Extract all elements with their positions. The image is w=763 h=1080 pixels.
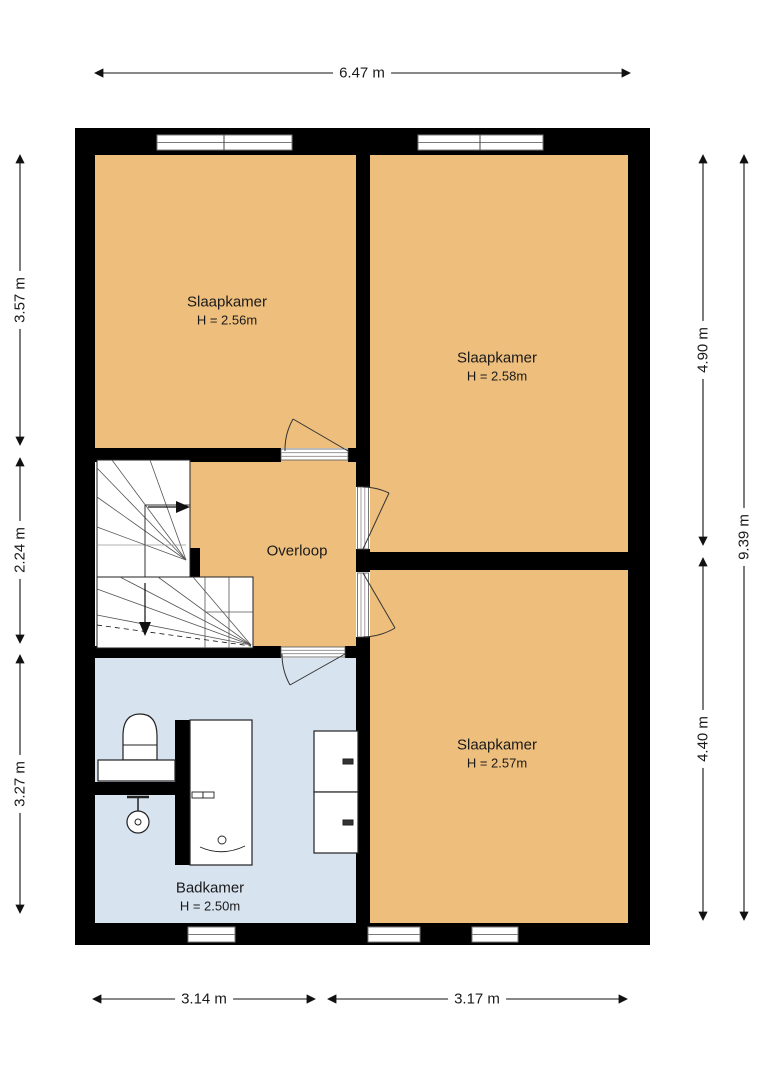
dimension-bottom-left: 3.14 m: [175, 991, 233, 1008]
room-label-slaapkamer-1: Slaapkamer H = 2.56m: [187, 294, 267, 329]
wall-mid-vertical-upper: [356, 150, 370, 487]
wall-counter-stub: [95, 782, 175, 795]
wall-slaapkamer1-bottom-right: [348, 448, 356, 462]
room-name: Slaapkamer: [457, 350, 537, 369]
wall-mid-vertical-between-doors: [356, 549, 370, 572]
room-label-slaapkamer-3: Slaapkamer H = 2.57m: [457, 737, 537, 772]
wall-mid-vertical-lower: [356, 637, 370, 923]
wall-right: [628, 128, 650, 945]
room-height: H = 2.56m: [187, 312, 267, 328]
dimension-top: 6.47 m: [333, 65, 391, 82]
wall-shower-stub: [175, 720, 190, 865]
room-label-slaapkamer-2: Slaapkamer H = 2.58m: [457, 350, 537, 385]
wall-stair-stub: [188, 548, 200, 577]
wall-between-right-rooms: [370, 552, 628, 570]
room-name: Slaapkamer: [187, 294, 267, 313]
dimension-right-upper: 4.90 m: [695, 321, 712, 379]
room-height: H = 2.58m: [457, 368, 537, 384]
wall-left: [75, 128, 95, 945]
dimension-left-middle: 2.24 m: [12, 521, 29, 579]
dimension-left-upper: 3.57 m: [12, 271, 29, 329]
wall-slaapkamer1-bottom-left: [95, 448, 281, 462]
dimension-right-lower: 4.40 m: [695, 710, 712, 768]
room-height: H = 2.57m: [457, 755, 537, 771]
floorplan: 6.47 m 3.57 m 2.24 m 3.27 m 4.90 m 4.40 …: [0, 0, 763, 1080]
dimension-left-lower: 3.27 m: [12, 755, 29, 813]
room-height: H = 2.50m: [176, 898, 244, 914]
dimension-bottom-right: 3.17 m: [448, 991, 506, 1008]
room-name: Overloop: [267, 543, 328, 562]
dimension-right-total: 9.39 m: [736, 508, 753, 566]
room-name: Badkamer: [176, 880, 244, 899]
wall-badkamer-top-left: [95, 646, 281, 658]
wall-badkamer-top-right: [345, 646, 356, 658]
room-name: Slaapkamer: [457, 737, 537, 756]
wall-bottom: [75, 923, 650, 945]
room-label-badkamer: Badkamer H = 2.50m: [176, 880, 244, 915]
room-label-overloop: Overloop: [267, 543, 328, 562]
